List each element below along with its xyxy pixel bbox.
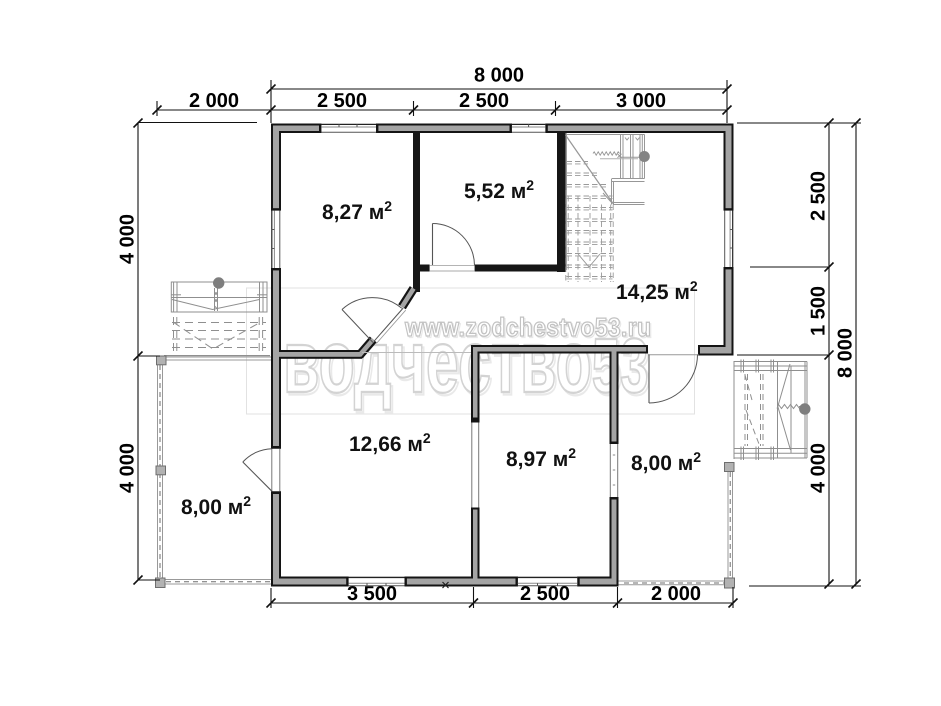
svg-text:8,00 м2: 8,00 м2 — [181, 493, 251, 519]
svg-text:8,00 м2: 8,00 м2 — [631, 449, 701, 475]
svg-text:8,97 м2: 8,97 м2 — [506, 445, 576, 471]
svg-text:5,52 м2: 5,52 м2 — [464, 177, 534, 203]
svg-text:8 000: 8 000 — [835, 328, 857, 378]
svg-text:3 000: 3 000 — [616, 90, 666, 112]
svg-text:2 000: 2 000 — [651, 583, 701, 605]
svg-text:4 000: 4 000 — [117, 214, 139, 264]
svg-text:2 500: 2 500 — [317, 90, 367, 112]
svg-text:2 500: 2 500 — [808, 171, 830, 221]
svg-text:4 000: 4 000 — [117, 443, 139, 493]
svg-text:2 500: 2 500 — [520, 583, 570, 605]
svg-text:2 500: 2 500 — [459, 90, 509, 112]
svg-text:водчество53: водчество53 — [283, 311, 649, 411]
svg-text:8,27 м2: 8,27 м2 — [322, 198, 392, 224]
svg-text:4 000: 4 000 — [808, 443, 830, 493]
svg-text:12,66 м2: 12,66 м2 — [349, 430, 431, 456]
svg-text:14,25 м2: 14,25 м2 — [616, 278, 698, 304]
svg-text:1 500: 1 500 — [808, 286, 830, 336]
svg-text:3 500: 3 500 — [347, 583, 397, 605]
svg-text:8 000: 8 000 — [474, 65, 524, 87]
svg-text:2 000: 2 000 — [189, 90, 239, 112]
